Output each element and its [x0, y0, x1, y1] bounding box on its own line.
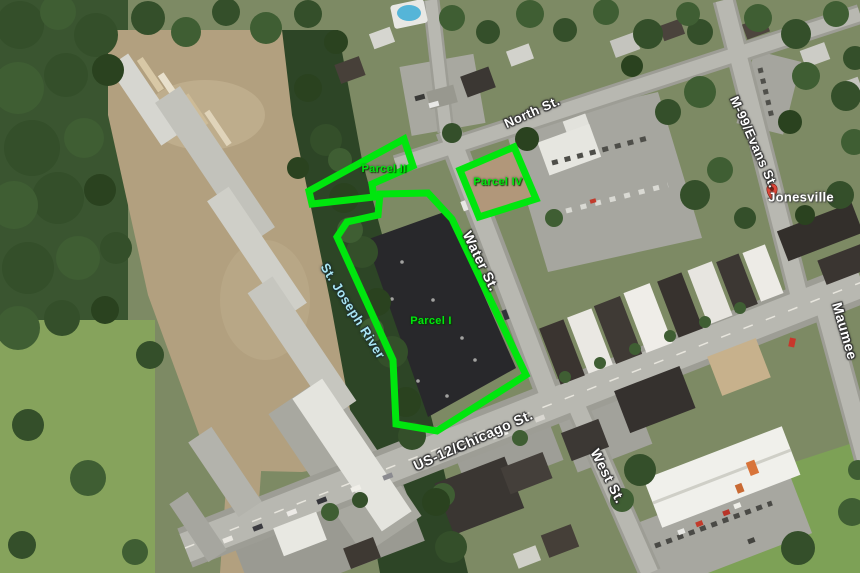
aerial-imagery-canvas [0, 0, 860, 573]
aerial-map[interactable]: North St. Water St. US-12/Chicago St. We… [0, 0, 860, 573]
